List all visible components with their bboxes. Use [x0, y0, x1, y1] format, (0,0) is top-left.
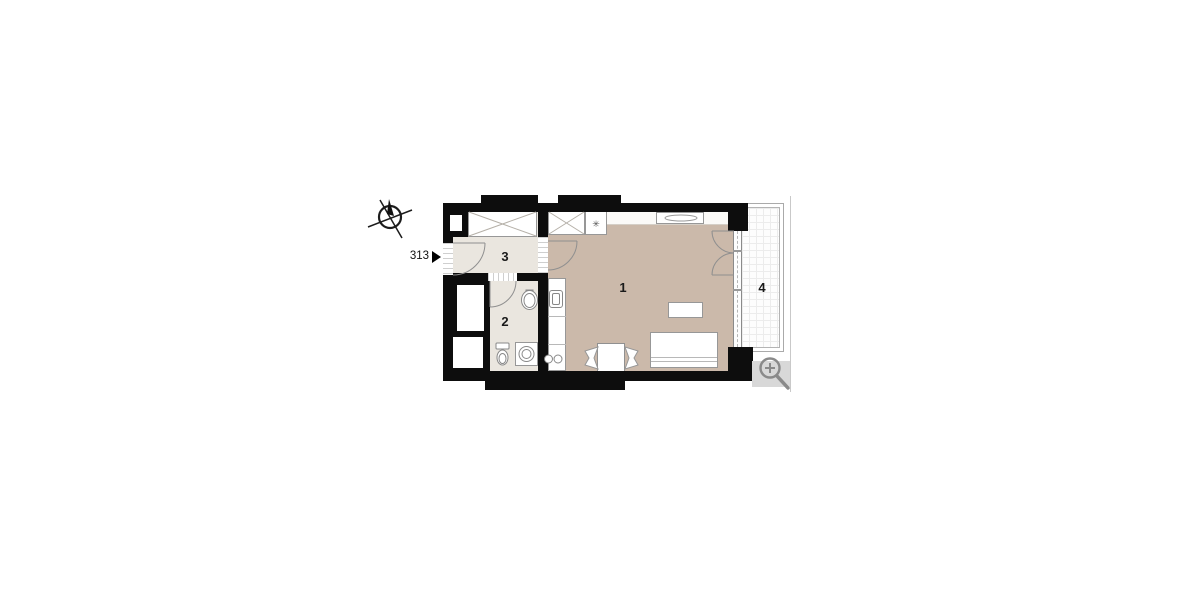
kitchen-sink-basin: [552, 293, 560, 305]
wall-hall-living-upper: [538, 211, 548, 237]
north-indicator-icon: [362, 192, 418, 244]
fridge-star-symbol: ✳: [592, 219, 600, 229]
service-shaft-lower: [453, 337, 483, 368]
wall-pier-bottom: [485, 371, 625, 390]
wall-left-lower: [443, 275, 453, 381]
wall-hall-bath-right: [517, 273, 548, 281]
dining-table: [597, 343, 625, 373]
wall-top: [443, 203, 748, 212]
entrance-door-opening: [443, 243, 453, 275]
service-shaft-upper: [457, 285, 484, 331]
entrance-triangle-icon: [432, 251, 441, 263]
washing-machine: [515, 342, 538, 366]
window-mullion: [733, 289, 742, 291]
hall-bath-door-opening: [488, 273, 517, 281]
zoom-button[interactable]: [750, 355, 794, 393]
room-label-1: 1: [615, 280, 631, 296]
wardrobe: [468, 211, 537, 237]
bed-blanket-line: [651, 357, 717, 358]
room-label-2: 2: [497, 314, 513, 330]
kitchen-upper-cabinet: [548, 211, 585, 235]
wall-bath-living: [538, 273, 548, 371]
window-mullion: [733, 250, 742, 252]
counter-divider: [548, 344, 566, 345]
wall-pier-top-a: [481, 195, 538, 203]
fridge-cabinet: ✳: [585, 211, 607, 235]
floor-plan: ✳: [0, 0, 1200, 600]
sideboard: [656, 212, 704, 224]
bed-blanket-line: [651, 361, 717, 362]
unit-number-label: 313: [398, 250, 429, 264]
zoom-in-icon: [750, 355, 794, 393]
room-label-3: 3: [497, 249, 513, 265]
balcony: [742, 203, 784, 352]
pier-niche: [450, 215, 462, 231]
wall-pier-top-right: [728, 203, 748, 231]
wall-pier-top-b: [558, 195, 621, 203]
room-label-4: 4: [754, 280, 770, 296]
bed: [650, 332, 718, 368]
coffee-table: [668, 302, 703, 318]
counter-divider: [548, 316, 566, 317]
hall-living-door-opening: [538, 237, 548, 273]
